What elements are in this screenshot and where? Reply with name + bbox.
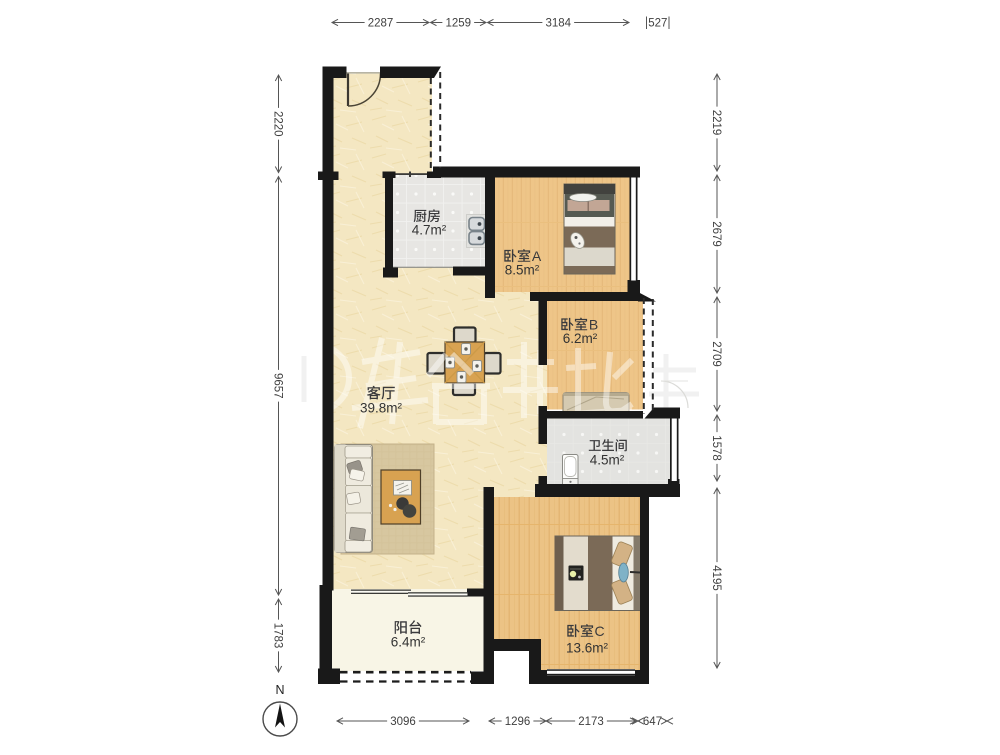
svg-text:6.4m²: 6.4m²	[391, 635, 426, 650]
svg-text:N: N	[275, 683, 284, 697]
svg-text:39.8m²: 39.8m²	[360, 401, 403, 416]
svg-text:1296: 1296	[505, 716, 531, 728]
svg-text:1578: 1578	[710, 435, 722, 461]
svg-text:2287: 2287	[368, 18, 394, 30]
svg-text:527: 527	[648, 18, 667, 30]
svg-text:2219: 2219	[710, 110, 722, 136]
svg-text:4.7m²: 4.7m²	[412, 223, 447, 238]
svg-text:647: 647	[643, 716, 662, 728]
svg-text:8.5m²: 8.5m²	[505, 263, 540, 278]
svg-text:2709: 2709	[710, 341, 722, 367]
svg-text:13.6m²: 13.6m²	[566, 641, 609, 656]
svg-text:4.5m²: 4.5m²	[590, 453, 625, 468]
svg-text:1259: 1259	[445, 18, 471, 30]
svg-text:9657: 9657	[272, 373, 284, 399]
svg-text:2679: 2679	[710, 221, 722, 247]
svg-text:1783: 1783	[272, 623, 284, 649]
svg-text:3184: 3184	[545, 18, 571, 30]
svg-text:4195: 4195	[710, 565, 722, 591]
svg-text:3096: 3096	[390, 716, 416, 728]
svg-text:6.2m²: 6.2m²	[563, 331, 598, 346]
svg-text:2173: 2173	[578, 716, 604, 728]
svg-text:C: C	[594, 623, 604, 639]
svg-text:2220: 2220	[272, 111, 284, 137]
